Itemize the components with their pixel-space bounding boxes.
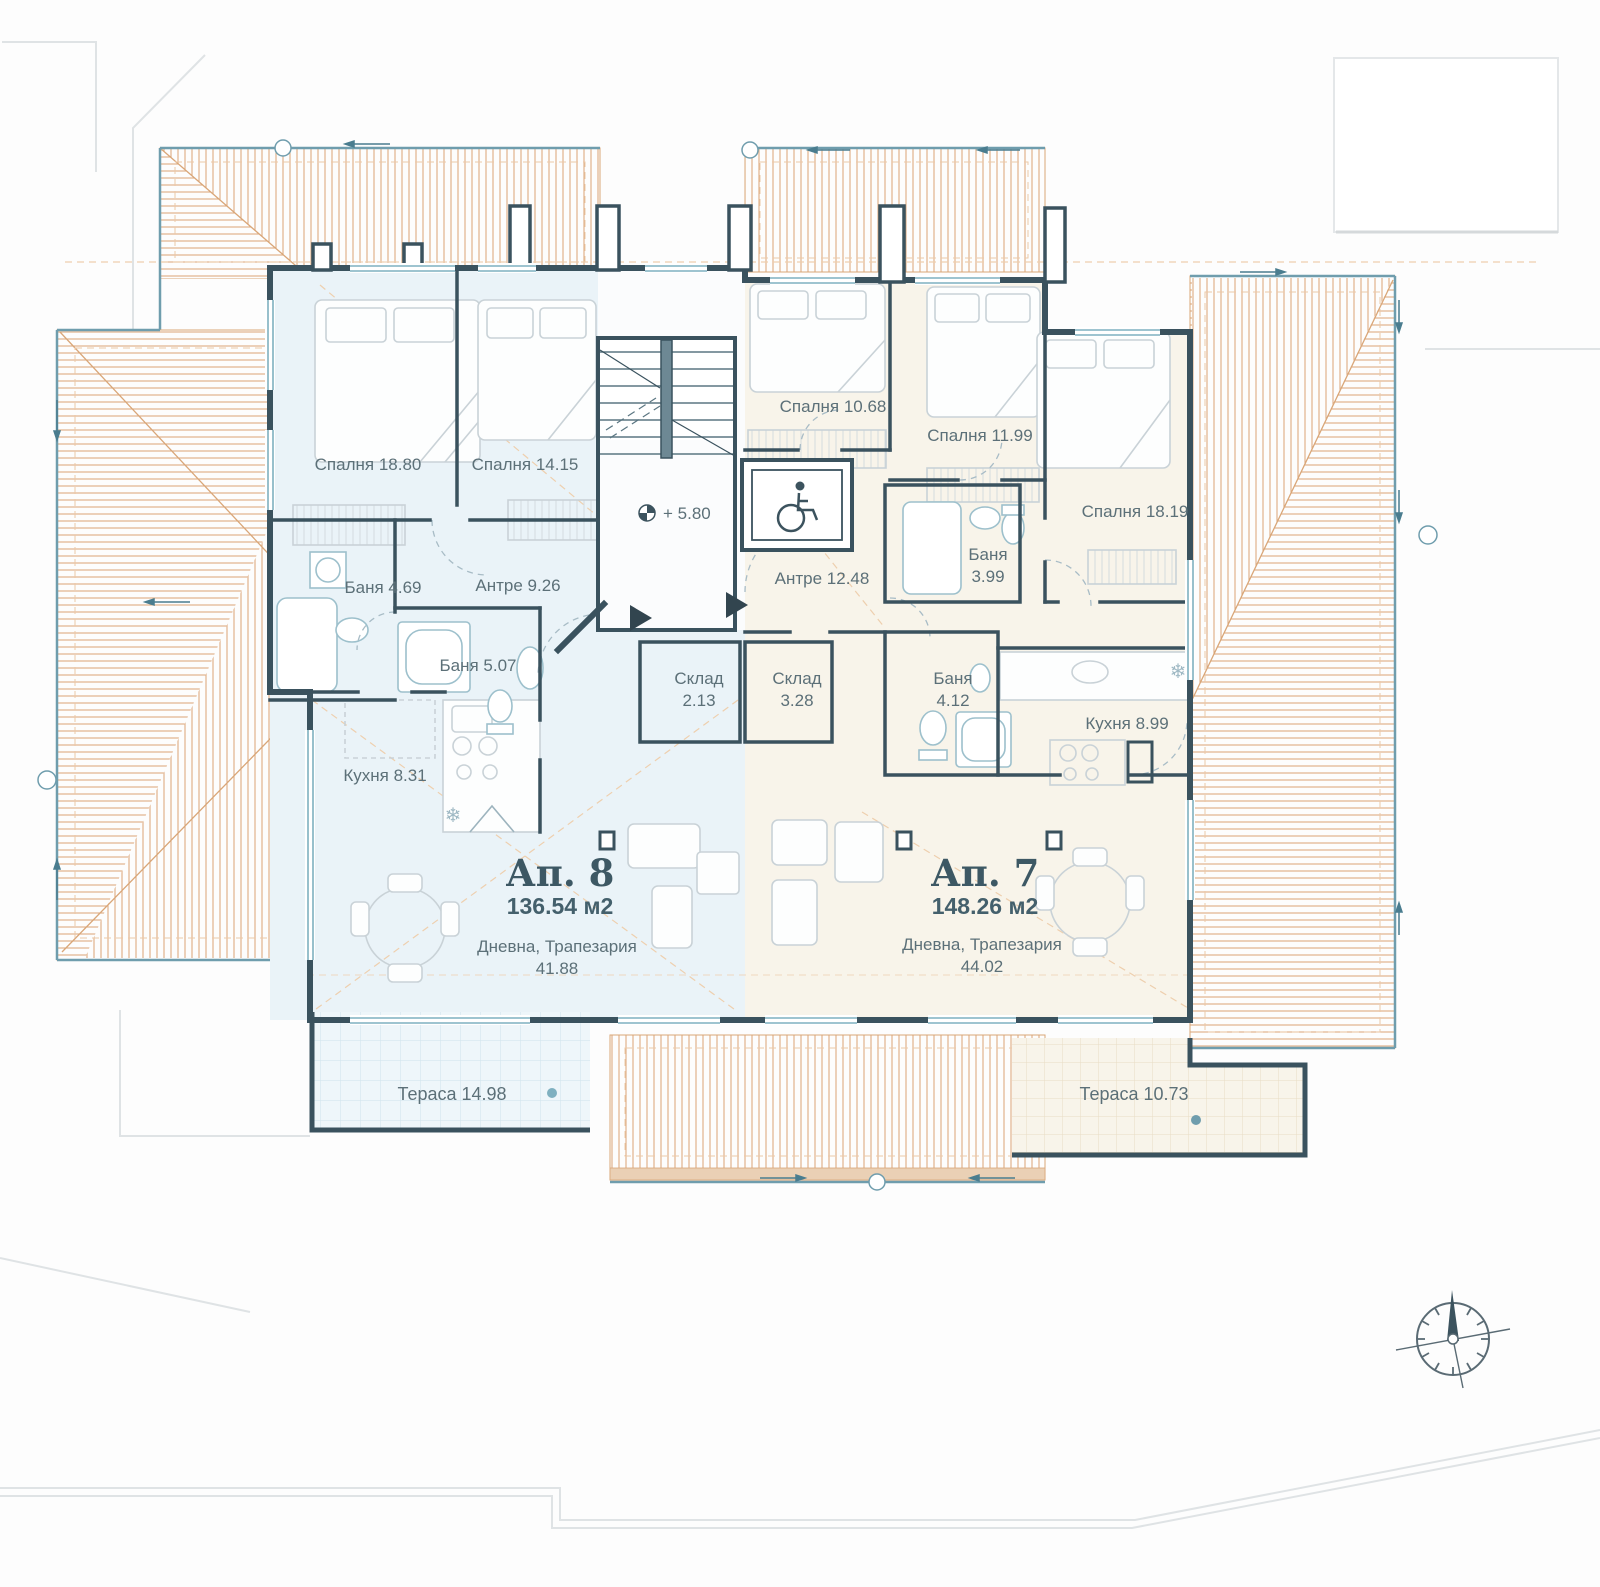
room-label-storage-328-line2: 3.28	[780, 691, 813, 710]
svg-text:❄: ❄	[1170, 661, 1187, 683]
room-label-bath-399-line1: Баня	[968, 545, 1007, 564]
level-marker-text: + 5.80	[663, 504, 711, 523]
bed-bedroom-1199	[927, 287, 1040, 417]
room-label-kitchen-899: Кухня 8.99	[1085, 714, 1168, 733]
apartment-7-living-area: 44.02	[961, 957, 1004, 976]
apartment-8-living-area: 41.88	[536, 959, 579, 978]
room-label-bedroom-1415: Спалня 14.15	[472, 455, 579, 474]
room-label-bedroom-1199: Спалня 11.99	[927, 426, 1032, 445]
floor-plan-drawing: ❄ ❄	[0, 0, 1600, 1587]
floor-plan-canvas: ❄ ❄	[0, 0, 1600, 1587]
roof-bottom-middle	[610, 1035, 1045, 1190]
apartment-7-title: Ап. 7	[931, 851, 1040, 895]
room-label-bedroom-1068: Спалня 10.68	[780, 397, 887, 416]
terrace-ap8-label: Тераса 14.98	[397, 1084, 506, 1104]
level-marker: + 5.80	[639, 504, 711, 523]
apartment-7-living-label: Дневна, Трапезария	[902, 935, 1062, 954]
room-label-bath-399-line2: 3.99	[971, 567, 1004, 586]
apartment-8-living-label: Дневна, Трапезария	[477, 937, 637, 956]
apartment-8-area: 136.54 м2	[507, 893, 614, 919]
room-label-storage-213-line1: Склад	[674, 669, 723, 688]
bed-bedroom-1415	[478, 300, 596, 440]
room-label-bath-507: Баня 5.07	[439, 656, 516, 675]
room-label-hall-1248: Антре 12.48	[775, 569, 870, 588]
room-label-bath-412-line1: Баня	[933, 669, 972, 688]
room-label-bath-469: Баня 4.69	[344, 578, 421, 597]
room-label-bedroom-1819: Спалня 18.19	[1082, 502, 1189, 521]
north-compass	[1396, 1290, 1510, 1388]
bed-bedroom-1068	[750, 284, 885, 392]
room-label-hall-926: Антре 9.26	[475, 576, 560, 595]
room-label-kitchen-831: Кухня 8.31	[343, 766, 426, 785]
apartment-8-title: Ап. 8	[506, 851, 615, 895]
terrace-ap8	[312, 1012, 590, 1130]
roof-right	[1190, 269, 1437, 1048]
room-label-storage-328-line1: Склад	[772, 669, 821, 688]
room-label-bedroom-1880: Спалня 18.80	[315, 455, 422, 474]
terrace-ap7-label: Тераса 10.73	[1079, 1084, 1188, 1104]
room-label-bath-412-line2: 4.12	[936, 691, 969, 710]
bed-bedroom-1819	[1037, 332, 1170, 468]
stair-stringer	[661, 340, 672, 458]
svg-text:❄: ❄	[445, 805, 462, 827]
apartment-7-area: 148.26 м2	[932, 893, 1039, 919]
room-label-storage-213-line2: 2.13	[682, 691, 715, 710]
